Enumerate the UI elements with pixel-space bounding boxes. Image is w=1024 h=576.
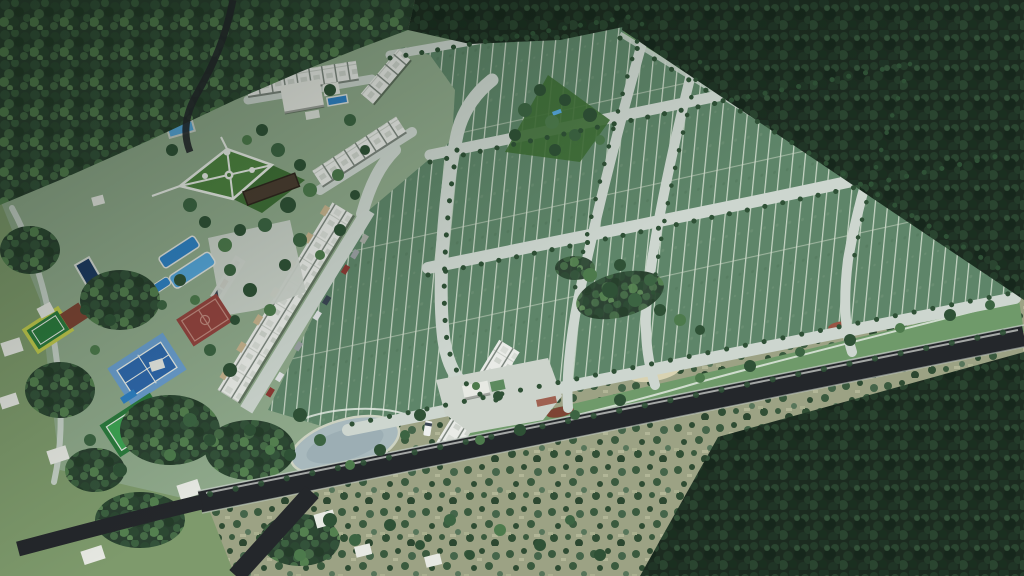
aerial-render-stage [0, 0, 1024, 576]
site-aerial-render [0, 0, 1024, 576]
